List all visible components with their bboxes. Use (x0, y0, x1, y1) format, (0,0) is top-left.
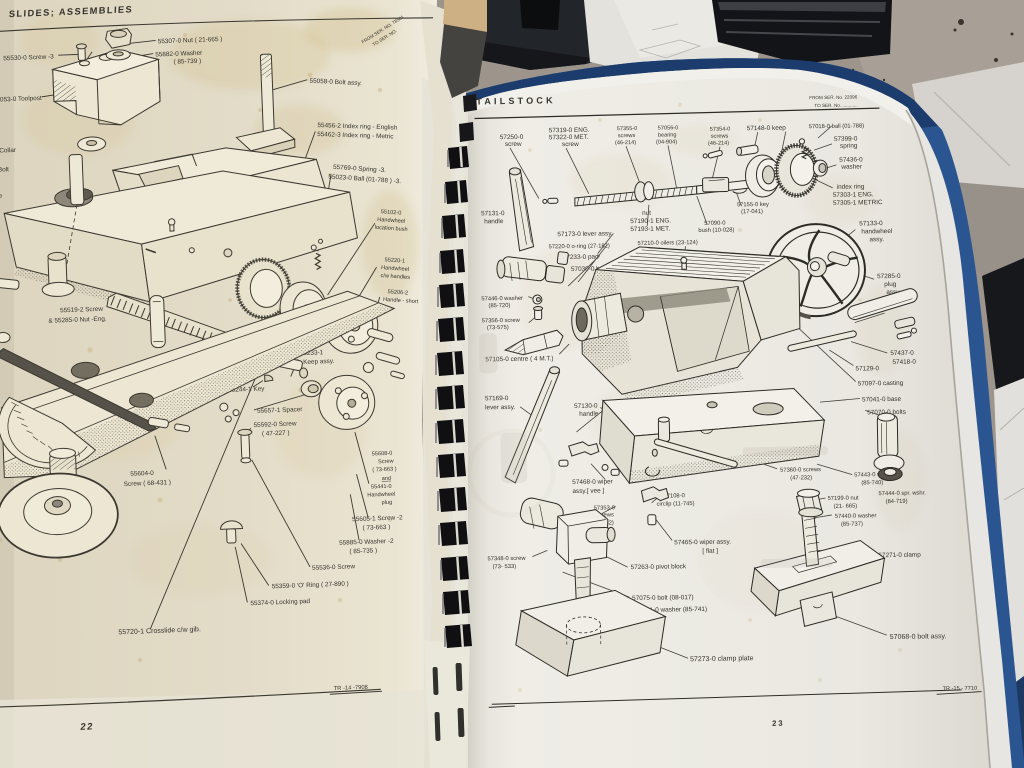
svg-text:57130-0: 57130-0 (574, 403, 598, 410)
svg-text:( 85-735 ): ( 85-735 ) (349, 547, 377, 555)
svg-text:57305-1 METRIC: 57305-1 METRIC (833, 199, 883, 207)
svg-text:(73- 533): (73- 533) (493, 564, 517, 570)
svg-text:handle: handle (579, 411, 599, 418)
svg-text:( 47-227 ): ( 47-227 ) (262, 430, 290, 438)
svg-text:(73-575): (73-575) (487, 325, 509, 331)
svg-text:57210-0 oilers (23-124): 57210-0 oilers (23-124) (637, 240, 697, 247)
svg-text:bearing: bearing (658, 132, 677, 138)
svg-text:57193-1 MET.: 57193-1 MET. (630, 225, 670, 233)
svg-text:nut: nut (642, 210, 651, 217)
svg-text:FROM SER. No. 22096: FROM SER. No. 22096 (809, 94, 858, 100)
svg-text:( 73-663 ): ( 73-663 ) (372, 467, 397, 474)
svg-text:57418-0: 57418-0 (892, 359, 916, 366)
svg-text:57440-0 washer: 57440-0 washer (835, 513, 877, 520)
svg-text:screw: screw (562, 141, 579, 148)
svg-text:(47-232): (47-232) (790, 475, 812, 481)
svg-text:57169-0: 57169-0 (485, 395, 509, 402)
svg-text:( 85-739 ): ( 85-739 ) (173, 58, 201, 66)
svg-text:57444-0 spr. wshr.: 57444-0 spr. wshr. (878, 490, 926, 497)
svg-text:Screw: Screw (378, 459, 395, 466)
svg-text:screw: screw (505, 141, 522, 148)
svg-text:57190-1 ENG.: 57190-1 ENG. (630, 217, 671, 225)
svg-text:[ flat ]: [ flat ] (702, 548, 718, 555)
svg-text:57131-0: 57131-0 (481, 210, 505, 217)
svg-text:bush (10-028): bush (10-028) (698, 227, 734, 234)
svg-text:23: 23 (772, 719, 784, 728)
svg-text:(85-737): (85-737) (841, 521, 863, 527)
svg-text:lide: lide (0, 193, 2, 199)
svg-text:(46-214): (46-214) (708, 141, 729, 147)
svg-text:57129-0: 57129-0 (855, 365, 879, 372)
svg-text:22: 22 (80, 721, 95, 733)
svg-text:57273-0 clamp plate: 57273-0 clamp plate (690, 655, 754, 663)
svg-text:57148-0 keep: 57148-0 keep (747, 125, 787, 133)
svg-text:57075-0 bolt (08-017): 57075-0 bolt (08-017) (632, 594, 694, 602)
svg-text:57056-0: 57056-0 (658, 125, 679, 131)
svg-text:57018-0 ball (01-788): 57018-0 ball (01-788) (809, 123, 865, 130)
svg-text:57355-0: 57355-0 (617, 126, 638, 132)
svg-text:plug: plug (382, 500, 393, 506)
svg-text:57041-0 base: 57041-0 base (862, 396, 902, 404)
svg-text:assy.: assy. (869, 236, 884, 243)
svg-text:55441-0: 55441-0 (371, 484, 392, 491)
svg-text:screws: screws (618, 133, 636, 139)
svg-text:57446-0 washer: 57446-0 washer (481, 296, 523, 303)
svg-text:circlip (11-745): circlip (11-745) (657, 501, 695, 508)
svg-text:57468-0 wiper: 57468-0 wiper (572, 478, 613, 486)
svg-text:TAILSTOCK: TAILSTOCK (476, 95, 556, 106)
svg-text:57285-0: 57285-0 (877, 273, 901, 280)
svg-text:Handwheel: Handwheel (367, 492, 395, 499)
svg-text:57465-0 wiper assy.: 57465-0 wiper assy. (674, 539, 731, 547)
svg-text:57068-0 bolt assy.: 57068-0 bolt assy. (890, 633, 947, 641)
svg-text:57354-0: 57354-0 (710, 126, 731, 132)
svg-text:(84-719): (84-719) (886, 499, 908, 505)
svg-text:(85-740): (85-740) (861, 480, 883, 486)
svg-text:57090-0: 57090-0 (704, 221, 725, 227)
svg-text:57303-1 ENG.: 57303-1 ENG. (833, 191, 874, 199)
svg-text:TR -15 - 7710: TR -15 - 7710 (943, 686, 978, 693)
svg-text:57360-0 screws: 57360-0 screws (780, 467, 821, 474)
svg-text:(04-904): (04-904) (656, 139, 677, 145)
svg-text:Keep assy.: Keep assy. (303, 358, 335, 366)
svg-text:handwheel: handwheel (861, 228, 892, 235)
svg-text:57133-0: 57133-0 (859, 220, 883, 227)
svg-text:(21- 665): (21- 665) (834, 504, 858, 510)
svg-text:(85-720): (85-720) (488, 303, 510, 309)
svg-text:57097-0 casting: 57097-0 casting (858, 380, 904, 388)
svg-text:and: and (382, 476, 392, 482)
svg-text:spring: spring (840, 142, 858, 149)
svg-text:55608-0: 55608-0 (372, 451, 393, 458)
svg-text:washer: washer (840, 163, 863, 170)
svg-text:57348-0 screw: 57348-0 screw (487, 556, 526, 563)
svg-text:55604-0: 55604-0 (130, 470, 154, 478)
svg-text:57437-0: 57437-0 (890, 350, 914, 357)
svg-text:57173-0 lever assy.: 57173-0 lever assy. (557, 230, 613, 238)
svg-text:-0 Collar: -0 Collar (0, 147, 17, 155)
svg-text:57155-0 key: 57155-0 key (737, 202, 769, 209)
svg-text:assy.[ vee ]: assy.[ vee ] (572, 488, 604, 496)
svg-text:TO SER. No. ............: TO SER. No. ............ (814, 102, 857, 108)
svg-text:57356-0 screw: 57356-0 screw (482, 318, 521, 325)
svg-text:( 73-663 ): ( 73-663 ) (362, 524, 390, 532)
svg-text:(17-041): (17-041) (741, 209, 763, 215)
svg-text:lever assy.: lever assy. (485, 404, 515, 411)
svg-text:index ring: index ring (837, 183, 865, 190)
svg-text:57199-0 nut: 57199-0 nut (828, 496, 859, 502)
svg-text:0 Bolt: 0 Bolt (0, 166, 9, 174)
svg-text:handle: handle (484, 218, 504, 225)
svg-text:(46-214): (46-214) (615, 140, 636, 146)
svg-text:screws: screws (711, 134, 729, 140)
svg-text:plug: plug (884, 281, 897, 288)
svg-text:57263-0 pivot block: 57263-0 pivot block (631, 563, 687, 571)
